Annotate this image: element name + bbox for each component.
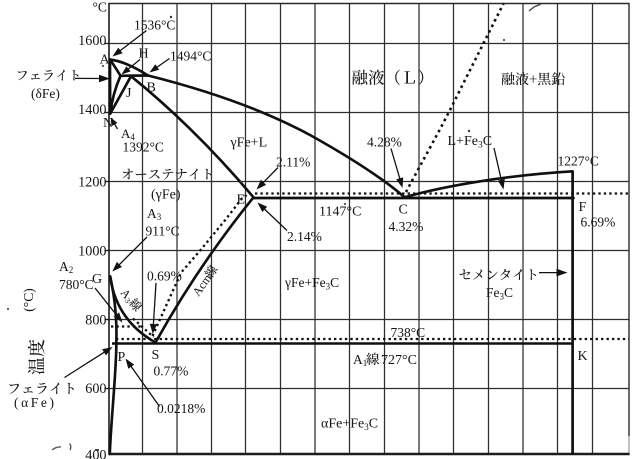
svg-text:P: P: [118, 350, 126, 365]
svg-text:γFe+L: γFe+L: [230, 136, 268, 151]
svg-text:1000: 1000: [78, 243, 106, 259]
svg-text:(δFe): (δFe): [31, 86, 60, 101]
svg-text:K: K: [578, 349, 588, 364]
svg-text:6.69%: 6.69%: [581, 215, 616, 230]
svg-text:4.32%: 4.32%: [389, 219, 424, 234]
svg-text:0.77%: 0.77%: [154, 364, 189, 379]
svg-text:F: F: [579, 200, 587, 215]
svg-text:0.0218%: 0.0218%: [157, 401, 205, 416]
svg-text:911°C: 911°C: [146, 224, 180, 239]
svg-text:1494°C: 1494°C: [170, 49, 211, 64]
svg-text:J: J: [126, 86, 132, 101]
svg-text:727°C: 727°C: [381, 353, 417, 368]
svg-text:0.69%: 0.69%: [147, 269, 182, 284]
svg-text:L+Fe3C: L+Fe3C: [448, 134, 493, 151]
svg-text:S: S: [152, 348, 160, 363]
svg-text:1536°C: 1536°C: [134, 18, 175, 33]
svg-text:(αFe): (αFe): [14, 395, 57, 410]
svg-text:1147°C: 1147°C: [319, 205, 361, 220]
svg-text:C: C: [399, 203, 408, 218]
svg-text:A: A: [100, 53, 111, 68]
svg-text:B: B: [147, 81, 156, 96]
svg-text:600: 600: [85, 381, 106, 397]
svg-text:(°C): (°C): [21, 288, 36, 311]
svg-text:4.28%: 4.28%: [367, 135, 402, 150]
svg-text:1392°C: 1392°C: [123, 140, 164, 155]
svg-text:E: E: [237, 193, 246, 208]
svg-text:738°C: 738°C: [391, 325, 426, 340]
svg-text:αFe+Fe3C: αFe+Fe3C: [321, 417, 378, 433]
svg-text:1227°C: 1227°C: [558, 154, 599, 169]
svg-text:H: H: [139, 47, 149, 62]
svg-text:(γFe): (γFe): [151, 188, 181, 203]
svg-text:°C: °C: [93, 0, 107, 15]
svg-text:2.14%: 2.14%: [287, 229, 322, 244]
svg-text:1600: 1600: [78, 33, 106, 49]
svg-text:2.11%: 2.11%: [276, 155, 310, 170]
svg-text:G: G: [92, 272, 102, 287]
svg-text:γFe+Fe3C: γFe+Fe3C: [284, 275, 339, 292]
svg-text:780°C: 780°C: [59, 277, 94, 292]
svg-text:N: N: [103, 116, 113, 131]
svg-text:800: 800: [85, 312, 106, 328]
svg-text:1200: 1200: [78, 174, 106, 190]
